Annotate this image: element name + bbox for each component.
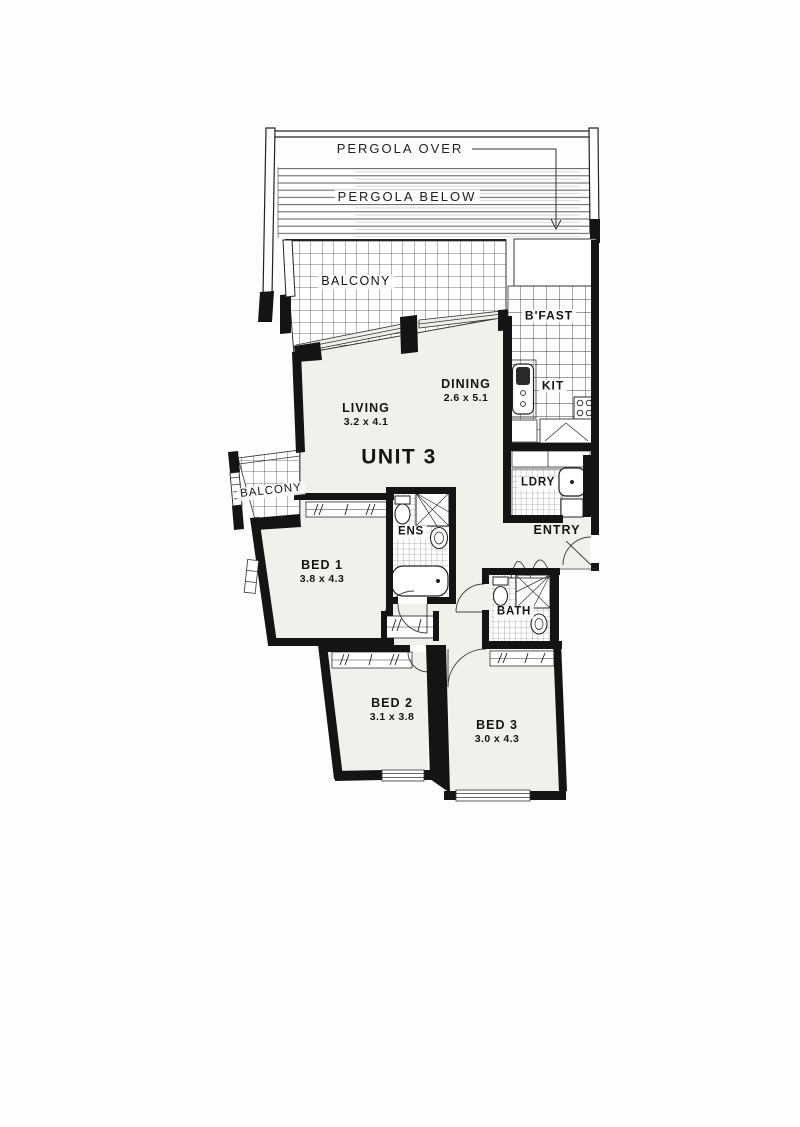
- room-label-living: LIVING: [342, 402, 390, 416]
- room-dims-bed1: 3.8 x 4.3: [300, 574, 344, 586]
- room-dims-bed3: 3.0 x 4.3: [475, 734, 519, 746]
- ensuite-shower: [416, 493, 449, 526]
- room-label-balcony-main: BALCONY: [318, 275, 394, 289]
- unit-title: UNIT 3: [361, 445, 437, 468]
- label-pergola-below: PERGOLA BELOW: [335, 190, 480, 204]
- room-label-ensuite: ENS: [395, 526, 427, 539]
- room-dims-living: 3.2 x 4.1: [344, 417, 388, 429]
- label-pergola-over: PERGOLA OVER: [337, 142, 464, 156]
- floor-plan-graphic: [0, 0, 800, 1127]
- ensuite-area: [392, 493, 449, 597]
- bath-toilet: [493, 577, 508, 606]
- ensuite-bathtub: [392, 566, 448, 596]
- room-dims-bed2: 3.1 x 3.8: [370, 712, 414, 724]
- room-label-bed2: BED 2: [371, 697, 413, 711]
- room-label-breakfast: B'FAST: [522, 309, 576, 322]
- room-label-entry: ENTRY: [534, 524, 581, 538]
- laundry-tub: [559, 468, 585, 517]
- room-label-bed3: BED 3: [476, 719, 518, 733]
- ensuite-basin: [431, 528, 448, 549]
- room-label-laundry: LDRY: [518, 477, 558, 490]
- planter-box: [514, 239, 596, 286]
- ensuite-toilet: [395, 496, 410, 524]
- room-label-bed1: BED 1: [301, 559, 343, 573]
- kitchen-sink: [513, 364, 534, 414]
- room-label-dining: DINING: [441, 378, 491, 392]
- room-label-bath: BATH: [494, 606, 534, 619]
- floor-plan-page: PERGOLA OVER PERGOLA BELOW BALCONY B'FAS…: [0, 0, 800, 1127]
- bath-shower: [516, 575, 550, 608]
- room-dims-dining: 2.6 x 5.1: [444, 393, 488, 405]
- room-label-kitchen: KIT: [539, 379, 567, 392]
